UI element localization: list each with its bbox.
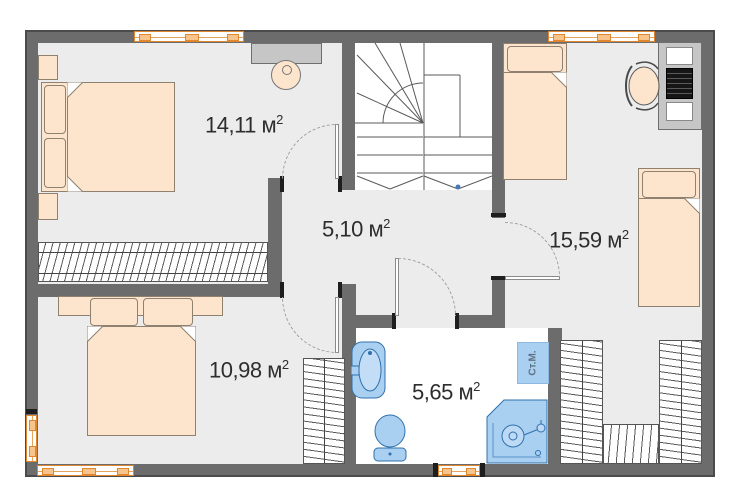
desk-papers xyxy=(666,102,693,121)
floor-plan: Ст.М. 14,11 м2 5,10 м2 15,59 м2 10,98 м2… xyxy=(0,0,740,502)
nightstand xyxy=(38,193,58,220)
blanket-fold xyxy=(67,82,83,98)
wardrobe-shelf-line xyxy=(39,273,267,274)
bed-blanket xyxy=(67,82,175,192)
office-chair-icon xyxy=(620,60,662,112)
area-label-hallway: 5,10 м2 xyxy=(322,216,390,242)
washing-machine: Ст.М. xyxy=(517,342,549,384)
window-jamb xyxy=(26,409,37,414)
wall-bathroom-north-a xyxy=(356,315,396,328)
window-top-left xyxy=(134,31,244,42)
wardrobe-door-split xyxy=(582,341,583,463)
wardrobe-nook-left xyxy=(560,340,603,464)
wall-hall-left xyxy=(268,178,282,297)
bed-blanket xyxy=(503,72,567,180)
stairs xyxy=(355,43,492,190)
double-bed-frame xyxy=(87,326,196,436)
wall-bathroom-north-b xyxy=(456,315,505,328)
window-mullion xyxy=(227,34,239,41)
pillow xyxy=(44,85,66,134)
pillow xyxy=(642,171,696,198)
blanket-fold xyxy=(87,326,103,342)
window-bathroom xyxy=(438,465,480,476)
window-mullion xyxy=(553,34,565,41)
nightstand xyxy=(38,55,58,80)
window-mullion xyxy=(82,468,96,475)
window-mullion xyxy=(29,446,36,457)
wall-stair-left xyxy=(342,43,355,190)
area-label-bathroom: 5,65 м2 xyxy=(412,379,480,405)
pillow xyxy=(143,298,193,326)
blanket-fold xyxy=(684,198,700,214)
stool-icon xyxy=(271,60,301,90)
window-mullion xyxy=(638,34,650,41)
window-mullion xyxy=(42,468,54,475)
door-jamb xyxy=(280,282,284,298)
area-label-bedroom2: 10,98 м2 xyxy=(209,357,289,383)
area-label-bedroom3: 15,59 м2 xyxy=(549,227,629,253)
window-top-right xyxy=(548,31,655,42)
window-jamb xyxy=(480,463,485,477)
bed-headboard-shelf xyxy=(58,296,223,316)
wardrobe-nook-right xyxy=(659,340,702,464)
door-jamb xyxy=(338,282,342,298)
door-jamb xyxy=(491,213,506,217)
window-mullion xyxy=(117,468,129,475)
stool-knob xyxy=(282,65,292,75)
blanket-fold xyxy=(67,176,83,192)
area-label-bedroom1: 14,11 м2 xyxy=(205,112,283,138)
window-mullion xyxy=(597,34,611,41)
window-mullion xyxy=(442,468,452,475)
wardrobe-bedroom1 xyxy=(38,242,268,282)
desk-papers xyxy=(666,47,693,65)
window-bottom-left xyxy=(37,465,134,476)
computer-icon xyxy=(666,68,693,99)
sink-icon xyxy=(351,341,387,399)
washing-machine-label: Ст.М. xyxy=(528,350,539,375)
blanket-fold xyxy=(180,326,196,342)
pillow xyxy=(90,298,138,326)
wardrobe-door-split xyxy=(324,359,325,463)
shower-icon xyxy=(486,399,549,465)
wardrobe-shelf-line xyxy=(39,252,267,253)
bed-blanket xyxy=(638,198,700,307)
window-left-wall xyxy=(26,415,37,462)
wardrobe-door-split xyxy=(681,341,682,463)
window-mullion xyxy=(29,420,36,431)
blanket-fold xyxy=(551,72,567,88)
wardrobe-bedroom2 xyxy=(303,358,345,464)
door-jamb xyxy=(491,276,506,280)
toilet-icon xyxy=(372,414,408,464)
window-mullion xyxy=(185,34,199,41)
level-marker xyxy=(456,185,461,190)
window-mullion xyxy=(139,34,151,41)
pillow xyxy=(44,138,66,188)
window-mullion xyxy=(466,468,476,475)
wardrobe-nook-bottom xyxy=(603,424,659,464)
pillow xyxy=(507,46,563,72)
